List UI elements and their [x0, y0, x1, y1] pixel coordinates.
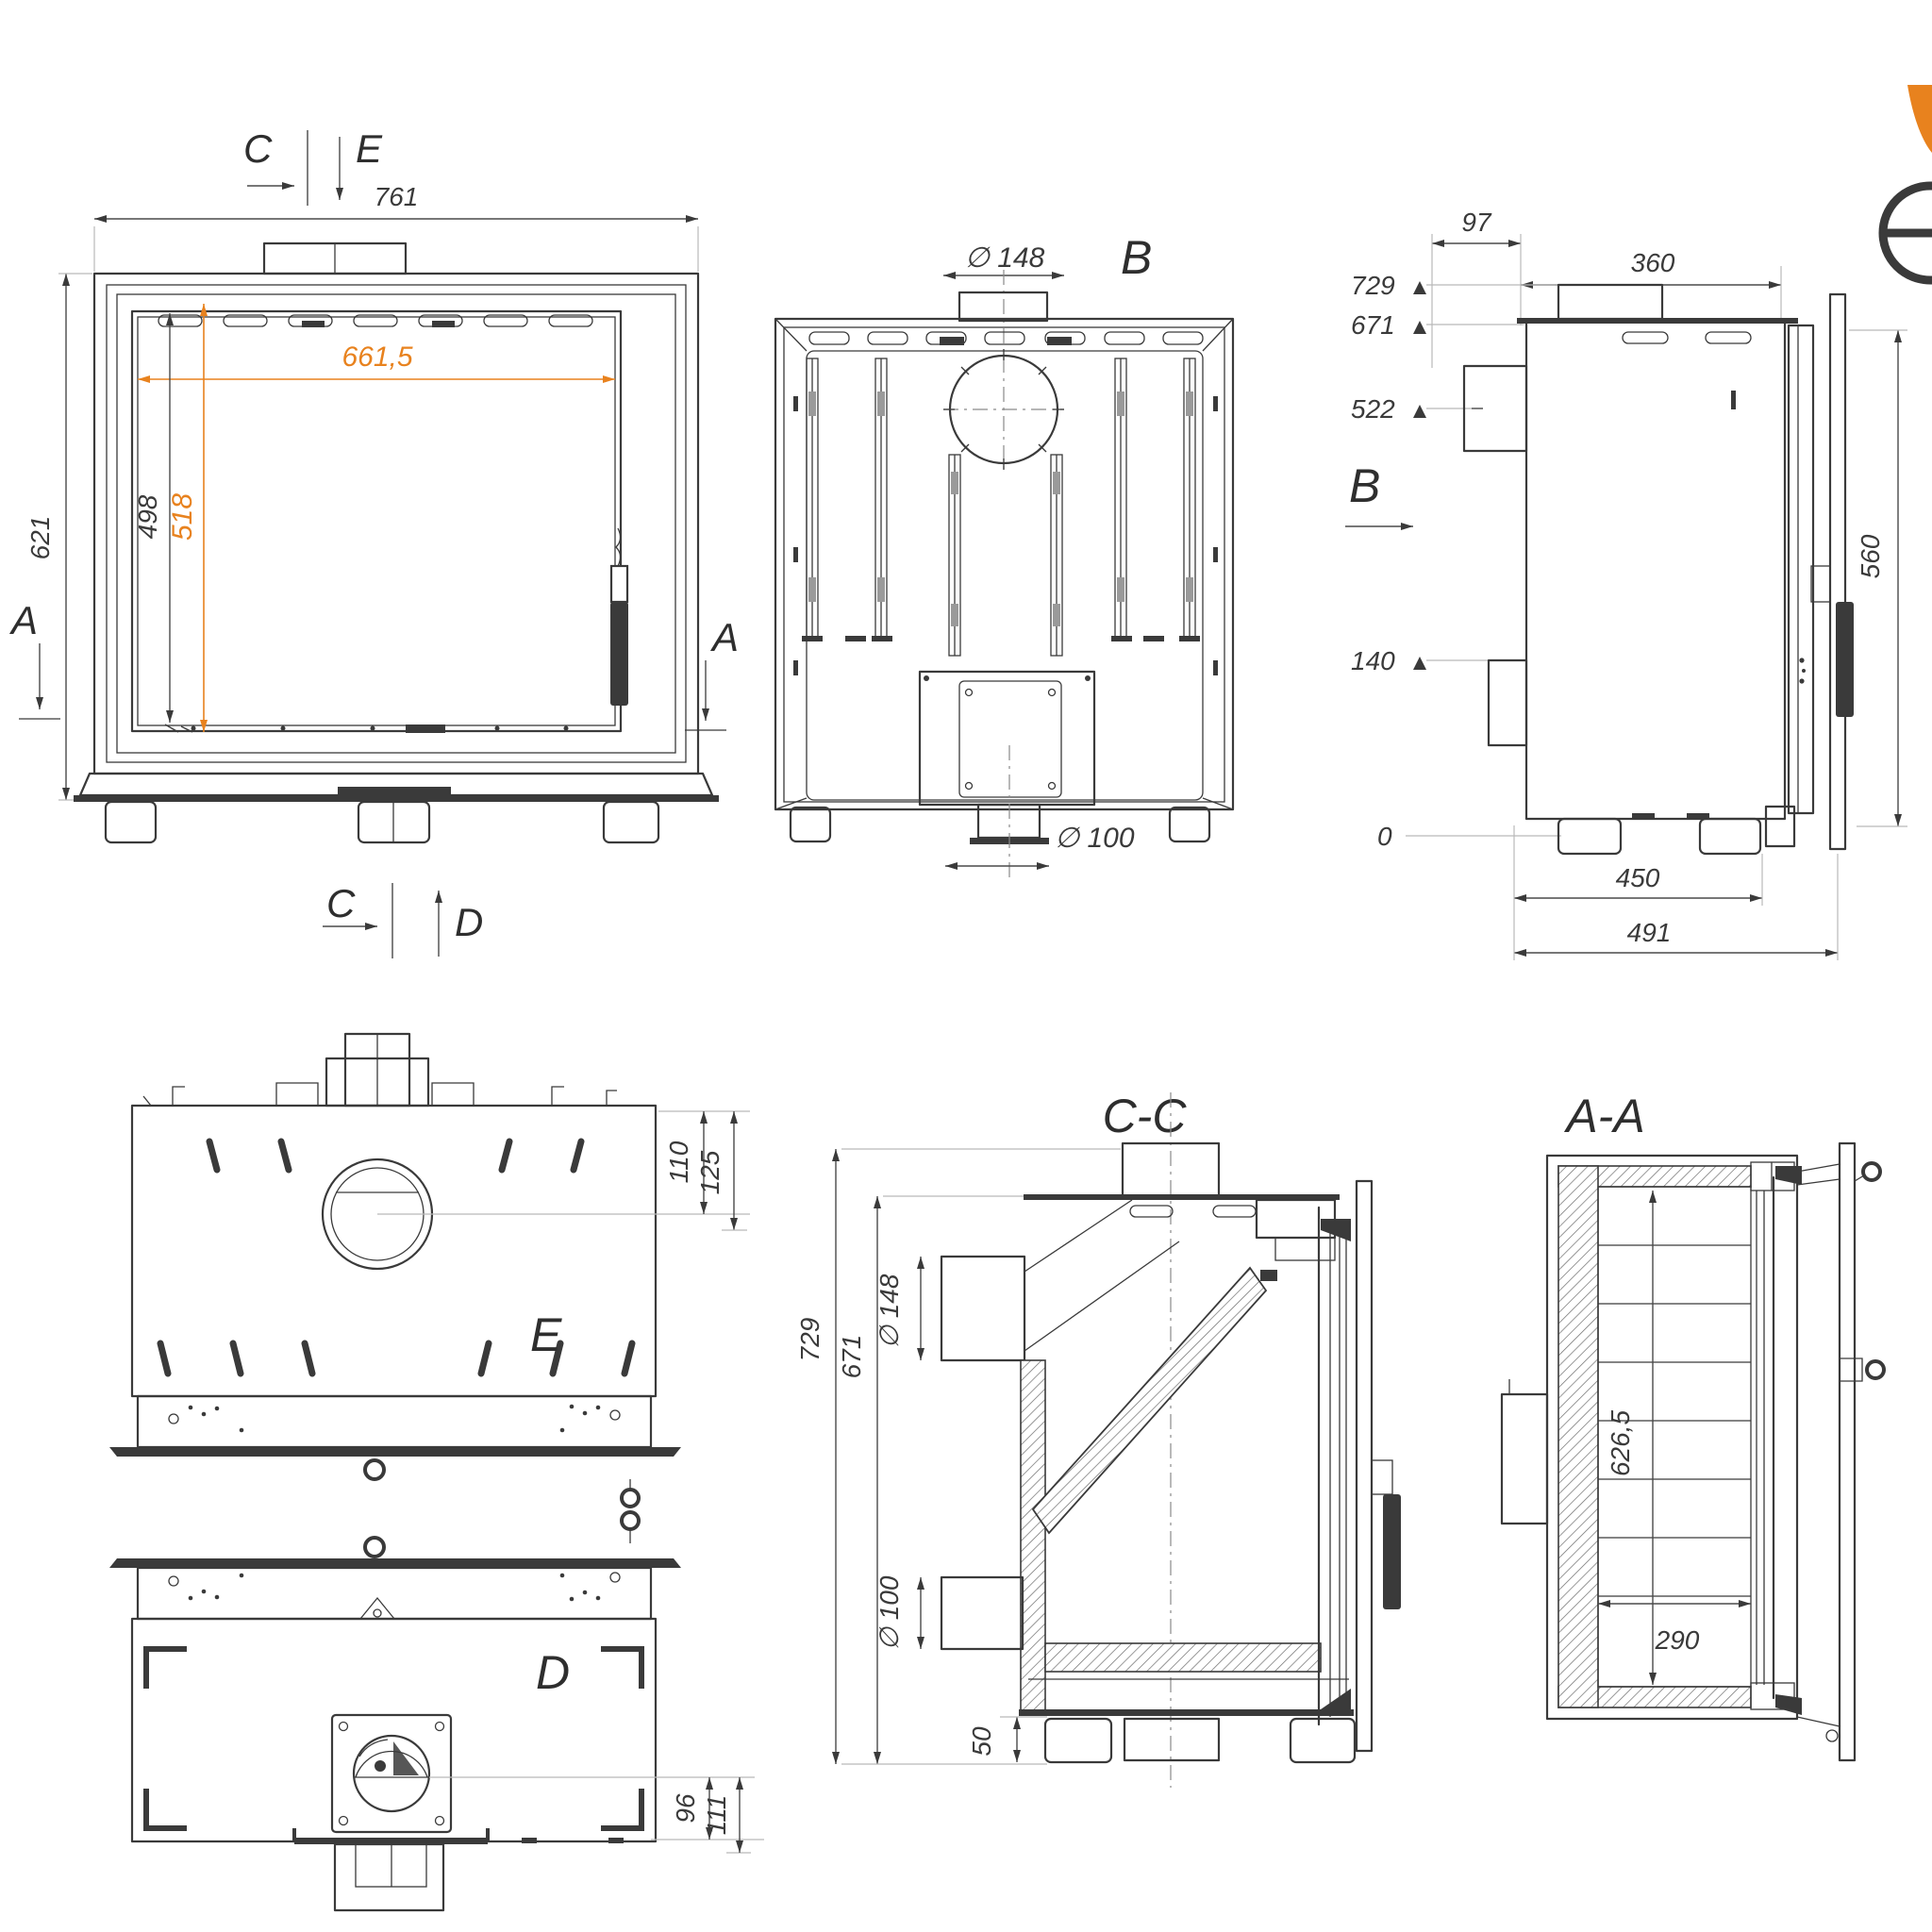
- cc-dim-air: ∅ 100: [874, 1575, 904, 1650]
- cc-dim-671: 671: [837, 1335, 866, 1379]
- section-cc: C-C 729 671 ∅ 148 ∅ 100 50: [795, 1090, 1401, 1788]
- rear-ribs: [793, 358, 1218, 675]
- drawing-page: C E 761 661,5 498 518 621: [0, 0, 1932, 1932]
- rear-air-housing: [920, 672, 1094, 805]
- front-dim-glass-width: 661,5: [341, 341, 412, 373]
- rear-top-slots: [809, 332, 1203, 345]
- aa-dim-width: 290: [1655, 1625, 1700, 1655]
- front-marker-bottom-d: D: [455, 900, 483, 944]
- side-dim-491: 491: [1627, 918, 1672, 947]
- side-level-671: 671: [1351, 310, 1395, 340]
- bottom-dim-96: 96: [671, 1793, 700, 1824]
- cc-dim-flue: ∅ 148: [874, 1274, 904, 1348]
- side-door: [1789, 294, 1854, 849]
- front-marker-bottom-c: C: [326, 881, 356, 925]
- bottom-dim-111: 111: [702, 1795, 731, 1836]
- top-rear-tabs: [143, 1083, 617, 1106]
- side-view: 97 360 729 671 522 140 0 B: [1345, 208, 1907, 960]
- side-level-522: 522: [1351, 394, 1395, 424]
- cc-label: C-C: [1103, 1090, 1188, 1142]
- front-dim-glass-height: 518: [167, 493, 198, 541]
- top-front-strip: [109, 1396, 681, 1507]
- front-marker-top-e: E: [356, 126, 383, 171]
- side-level-0: 0: [1377, 822, 1392, 851]
- bottom-front-strip: [138, 1568, 651, 1619]
- aa-label: A-A: [1563, 1090, 1644, 1142]
- side-dim-360: 360: [1631, 248, 1675, 277]
- side-level-140: 140: [1351, 646, 1395, 675]
- front-view: C E 761 661,5 498 518 621: [8, 126, 739, 958]
- front-marker-a-left: A: [8, 598, 38, 642]
- bottom-label-d: D: [536, 1646, 570, 1699]
- cc-door: [1319, 1181, 1401, 1751]
- front-marker-a-right: A: [709, 615, 739, 659]
- logo-petal: [1907, 85, 1932, 153]
- front-door-handle: [610, 528, 628, 706]
- technical-drawing: C E 761 661,5 498 518 621: [0, 0, 1932, 1932]
- rear-dim-air-inlet: ∅ 100: [1055, 823, 1135, 854]
- top-label-e: E: [530, 1308, 562, 1361]
- side-dim-97: 97: [1461, 208, 1492, 237]
- aa-door: [1757, 1143, 1884, 1760]
- front-dim-width: 761: [375, 182, 419, 211]
- top-view-e: E 110 125: [109, 1034, 750, 1507]
- side-level-scale: 729 671 522 140 0: [1351, 271, 1561, 851]
- side-label-b: B: [1349, 459, 1380, 512]
- rear-dim-flue: ∅ 148: [965, 242, 1045, 274]
- section-aa: A-A 626,5 290: [1502, 1090, 1884, 1760]
- front-marker-top-c: C: [243, 126, 273, 171]
- bottom-damper-plate: [332, 1715, 451, 1832]
- front-dim-height: 621: [25, 516, 55, 560]
- top-dim-110: 110: [664, 1141, 693, 1183]
- cc-dim-50: 50: [967, 1726, 996, 1757]
- front-dim-opening-height: 498: [133, 494, 162, 539]
- side-dim-450: 450: [1616, 863, 1660, 892]
- brand-logo: [1883, 85, 1932, 280]
- cc-dim-729: 729: [795, 1318, 824, 1362]
- top-dim-125: 125: [695, 1150, 724, 1194]
- aa-dim-height: 626,5: [1606, 1410, 1635, 1476]
- bottom-view-d: D 96 111: [109, 1512, 764, 1910]
- rear-view: ∅ 148 B: [775, 231, 1233, 882]
- rear-label-b: B: [1121, 231, 1152, 284]
- side-level-729: 729: [1351, 271, 1395, 300]
- side-dim-560: 560: [1856, 534, 1885, 578]
